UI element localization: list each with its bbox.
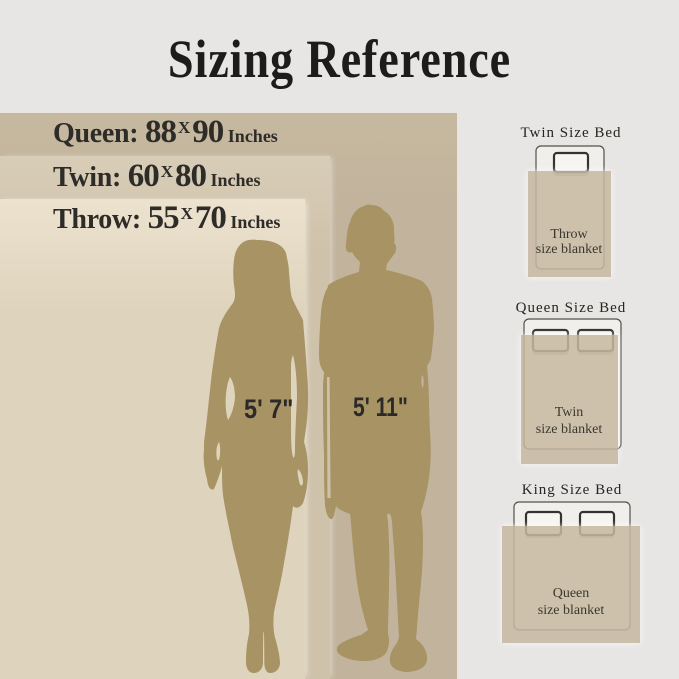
svg-text:King Size Bed: King Size Bed <box>522 482 623 498</box>
svg-text:Queen Size Bed: Queen Size Bed <box>516 300 627 316</box>
svg-text:Queen: Queen <box>553 586 590 601</box>
svg-text:size blanket: size blanket <box>536 242 603 257</box>
svg-text:Throw: Throw <box>550 227 588 242</box>
svg-text:Twin Size Bed: Twin Size Bed <box>520 125 621 141</box>
svg-text:size blanket: size blanket <box>538 603 605 618</box>
svg-text:size blanket: size blanket <box>536 422 603 437</box>
svg-text:Twin: Twin <box>555 405 584 420</box>
